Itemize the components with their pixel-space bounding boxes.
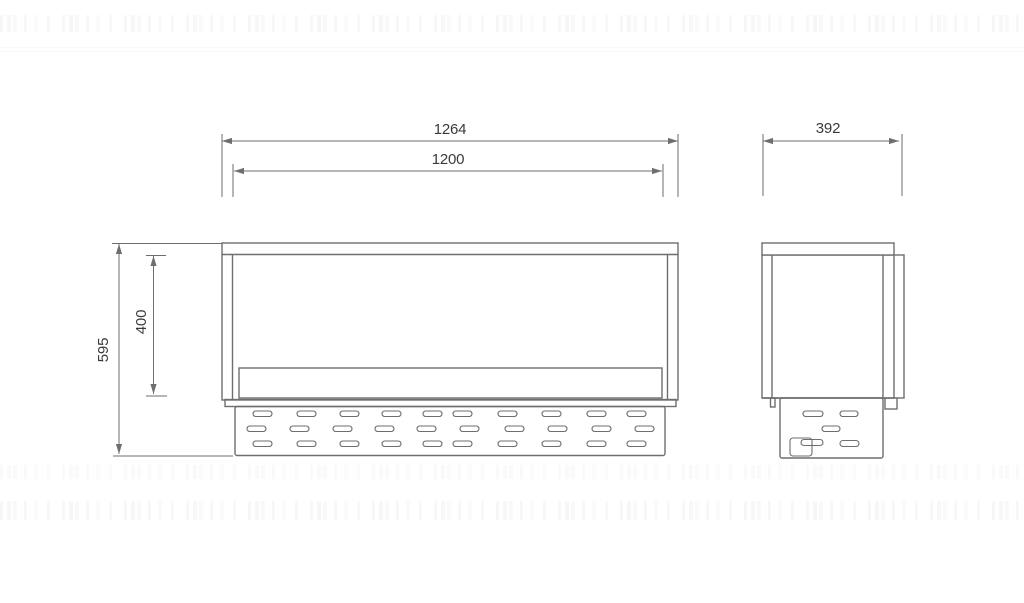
front-body-outline [222,243,678,400]
perforation-slot [423,411,442,417]
perforation-slot [460,426,479,432]
perforation-slot [417,426,436,432]
perforation-slot [498,411,517,417]
dimension-side-depth [763,134,902,196]
front-perforation-slots [247,411,654,447]
dim-value-front-outer-width: 1264 [410,122,490,138]
perforation-slot [340,411,359,417]
dim-value-front-opening-height: 400 [134,292,150,352]
side-body-outline [762,255,894,398]
perforation-slot [382,441,401,447]
perforation-slot [290,426,309,432]
perforation-slot [375,426,394,432]
perforation-slot [505,426,524,432]
front-burner-tray [239,368,662,398]
dim-value-front-total-height: 595 [96,320,112,380]
dim-value-front-inner-width: 1200 [408,152,488,168]
side-view [762,243,904,458]
front-view [222,243,678,456]
perforation-slot [548,426,567,432]
technical-drawing [0,0,1024,603]
perforation-slot [627,441,646,447]
perforation-slot [627,411,646,417]
perforation-slot [340,441,359,447]
side-perforated-panel [780,398,883,458]
perforation-slot [297,441,316,447]
dim-value-side-depth: 392 [788,121,868,137]
perforation-slot [253,411,272,417]
perforation-slot [635,426,654,432]
perforation-slot [498,441,517,447]
dimension-front-inner-width [233,164,663,197]
perforation-slot [453,441,472,447]
side-left-foot [771,398,776,407]
perforation-slot [297,411,316,417]
perforation-slot [247,426,266,432]
perforation-slot [253,441,272,447]
perforation-slot [542,441,561,447]
perforation-slot [333,426,352,432]
perforation-slot [423,441,442,447]
perforation-slot [587,411,606,417]
perforation-slot [592,426,611,432]
drawing-canvas: 1264 1200 392 595 400 [0,0,1024,603]
perforation-slot [382,411,401,417]
side-top-strip [762,243,894,255]
dimension-front-total-height [112,244,233,457]
side-right-foot [885,398,897,409]
perforation-slot [542,411,561,417]
perforation-slot [453,411,472,417]
perforation-slot [587,441,606,447]
